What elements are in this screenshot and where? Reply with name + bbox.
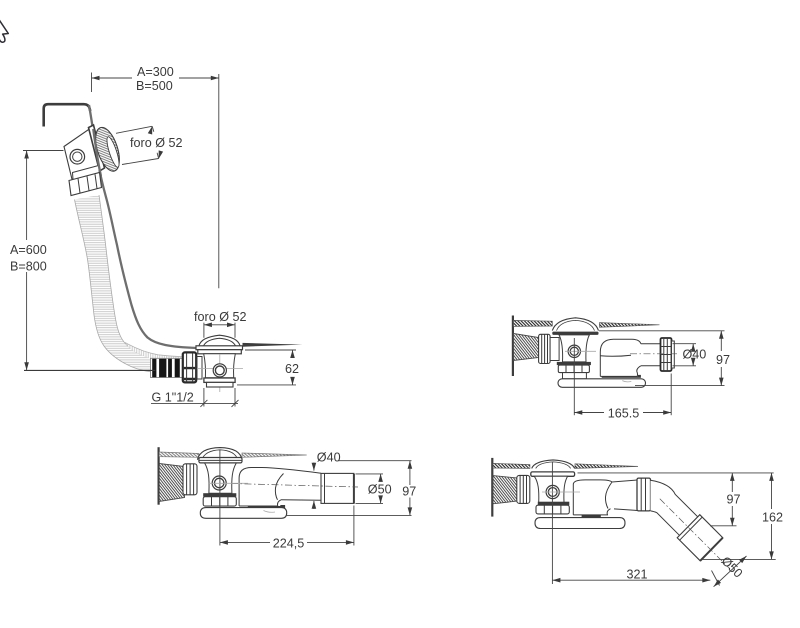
- svg-text:224,5: 224,5: [273, 537, 305, 551]
- svg-text:97: 97: [402, 485, 416, 499]
- svg-text:G 1"1/2: G 1"1/2: [152, 391, 194, 405]
- svg-text:165.5: 165.5: [608, 407, 640, 421]
- svg-text:321: 321: [626, 567, 647, 581]
- svg-text:Ø50: Ø50: [368, 483, 392, 497]
- svg-text:97: 97: [726, 493, 740, 507]
- svg-text:foro Ø 52: foro Ø 52: [194, 310, 247, 324]
- svg-text:A=300: A=300: [137, 65, 174, 79]
- svg-text:B=800: B=800: [10, 260, 47, 274]
- svg-text:62: 62: [285, 362, 299, 376]
- svg-text:97: 97: [716, 353, 730, 367]
- svg-text:Ø40: Ø40: [317, 450, 341, 464]
- svg-text:B=500: B=500: [136, 79, 173, 93]
- svg-text:A=600: A=600: [10, 243, 47, 257]
- svg-text:foro Ø 52: foro Ø 52: [130, 136, 183, 150]
- svg-text:162: 162: [762, 511, 783, 525]
